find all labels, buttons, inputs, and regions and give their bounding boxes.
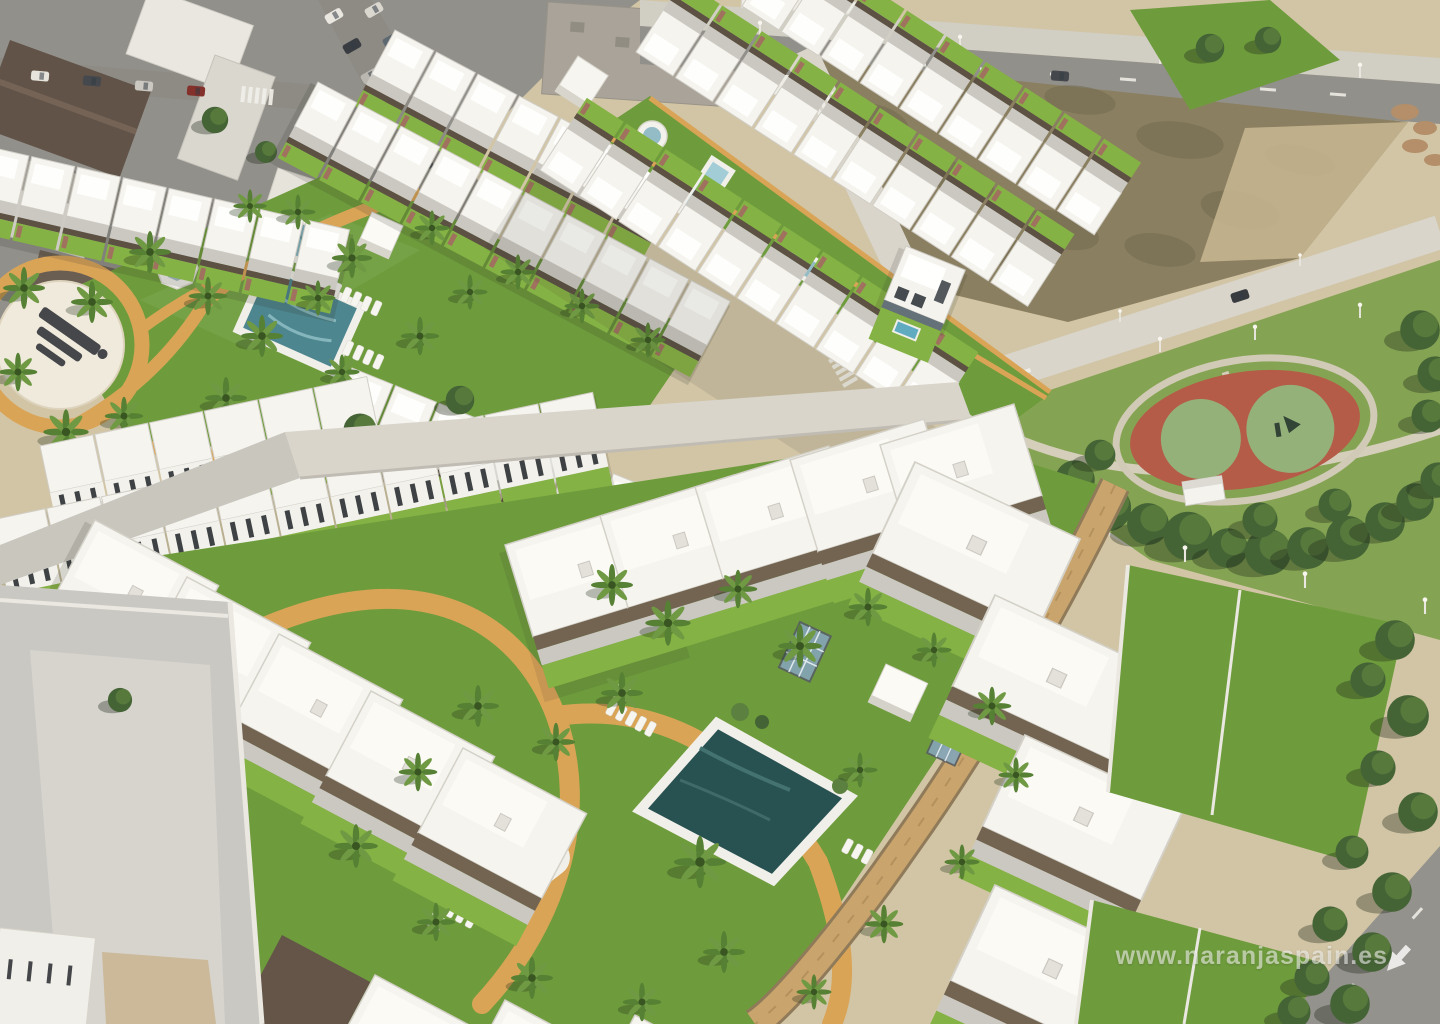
watermark: www.naranjaspain.es	[1116, 942, 1388, 971]
aerial-development-render: www.naranjaspain.es	[0, 0, 1440, 1024]
light-glare-overlay	[0, 0, 1440, 1024]
